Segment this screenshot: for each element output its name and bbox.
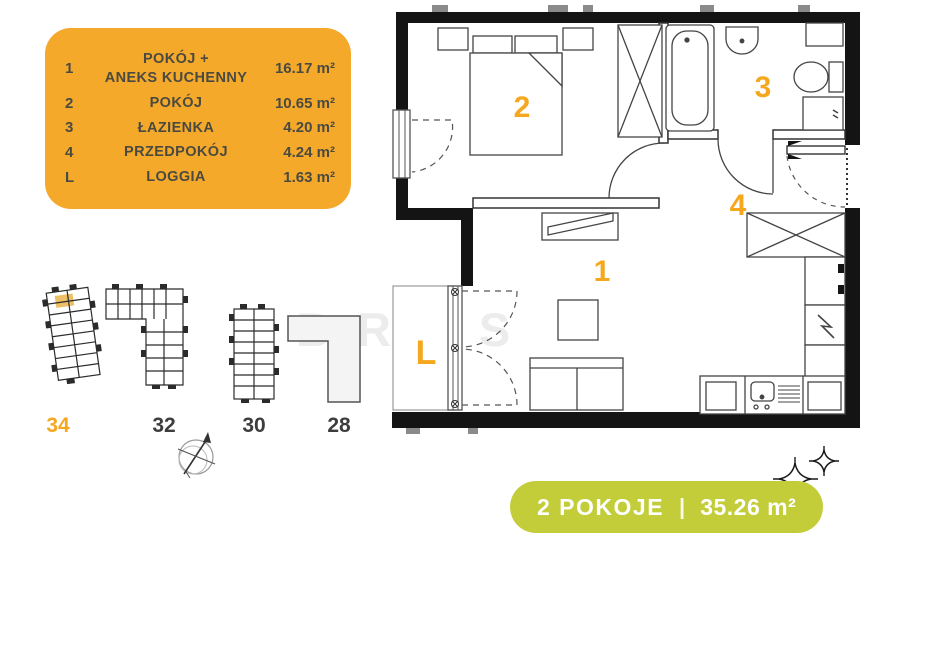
room-legend: 1 POKÓJ + ANEKS KUCHENNY 16.17 m² 2 POKÓ… xyxy=(45,28,351,209)
badge-divider: | xyxy=(677,494,687,520)
washbasin xyxy=(726,27,758,54)
washing-machine xyxy=(803,97,843,130)
room-label-2: 2 xyxy=(514,91,531,124)
electrical-cabinet xyxy=(805,305,845,345)
legend-room-name: PRZEDPOKÓJ xyxy=(95,143,257,162)
room-label-4: 4 xyxy=(730,189,747,222)
nightstand xyxy=(438,28,468,50)
legend-row: 4 PRZEDPOKÓJ 4.24 m² xyxy=(65,140,335,165)
building-34 xyxy=(41,282,106,386)
summary-badge: 2 POKOJE | 35.26 m² xyxy=(510,481,823,533)
window xyxy=(393,110,453,178)
building-number-32: 32 xyxy=(144,414,184,438)
nightstand xyxy=(563,28,593,50)
legend-room-area: 10.65 m² xyxy=(257,95,335,112)
building-number-28: 28 xyxy=(319,414,359,438)
building-32 xyxy=(106,284,188,389)
legend-room-name: ŁAZIENKA xyxy=(95,119,257,138)
floorplan-page: BRAS 1 POKÓJ + ANEKS KUCHENNY 16.17 m² 2… xyxy=(0,0,936,651)
legend-room-area: 4.20 m² xyxy=(257,119,335,136)
bathroom-door xyxy=(718,139,773,194)
legend-room-number: L xyxy=(65,169,95,186)
legend-room-number: 3 xyxy=(65,119,95,136)
legend-room-area: 1.63 m² xyxy=(257,169,335,186)
badge-total-area: 35.26 m² xyxy=(700,494,796,521)
bathroom-cabinet xyxy=(806,23,843,46)
sofa xyxy=(530,358,623,410)
coffee-table xyxy=(558,300,598,340)
legend-room-number: 1 xyxy=(65,60,95,77)
balcony-door xyxy=(448,286,517,410)
compass-icon xyxy=(178,432,215,478)
legend-row: 3 ŁAZIENKA 4.20 m² xyxy=(65,116,335,141)
legend-room-area: 16.17 m² xyxy=(257,60,335,77)
building-30 xyxy=(229,304,279,403)
room-label-3: 3 xyxy=(755,71,772,104)
legend-room-number: 2 xyxy=(65,95,95,112)
wardrobe-bedroom xyxy=(618,25,662,137)
kitchen-cabinet xyxy=(805,345,845,378)
room-label-1: 1 xyxy=(594,255,611,288)
bathtub xyxy=(666,25,714,131)
badge-room-count: 2 POKOJE xyxy=(537,494,664,521)
building-28 xyxy=(288,316,360,402)
sparkle-icon xyxy=(809,446,839,476)
building-number-30: 30 xyxy=(234,414,274,438)
pillow xyxy=(473,36,512,53)
kitchen-counter xyxy=(700,376,845,414)
wardrobe-hall xyxy=(747,213,845,257)
legend-row: 2 POKÓJ 10.65 m² xyxy=(65,91,335,116)
toilet xyxy=(794,62,843,92)
legend-row: 1 POKÓJ + ANEKS KUCHENNY 16.17 m² xyxy=(65,47,335,91)
legend-room-name: POKÓJ + ANEKS KUCHENNY xyxy=(95,50,257,88)
legend-room-number: 4 xyxy=(65,144,95,161)
tv-cabinet xyxy=(542,213,618,240)
pillow xyxy=(515,36,557,53)
legend-room-name: LOGGIA xyxy=(95,168,257,187)
fridge xyxy=(805,257,845,305)
legend-room-area: 4.24 m² xyxy=(257,144,335,161)
entrance-door xyxy=(787,141,847,208)
building-number-34: 34 xyxy=(38,414,78,438)
legend-room-name: POKÓJ xyxy=(95,94,257,113)
bedroom-door xyxy=(609,143,664,198)
room-label-loggia: L xyxy=(416,334,437,372)
legend-row: L LOGGIA 1.63 m² xyxy=(65,165,335,190)
